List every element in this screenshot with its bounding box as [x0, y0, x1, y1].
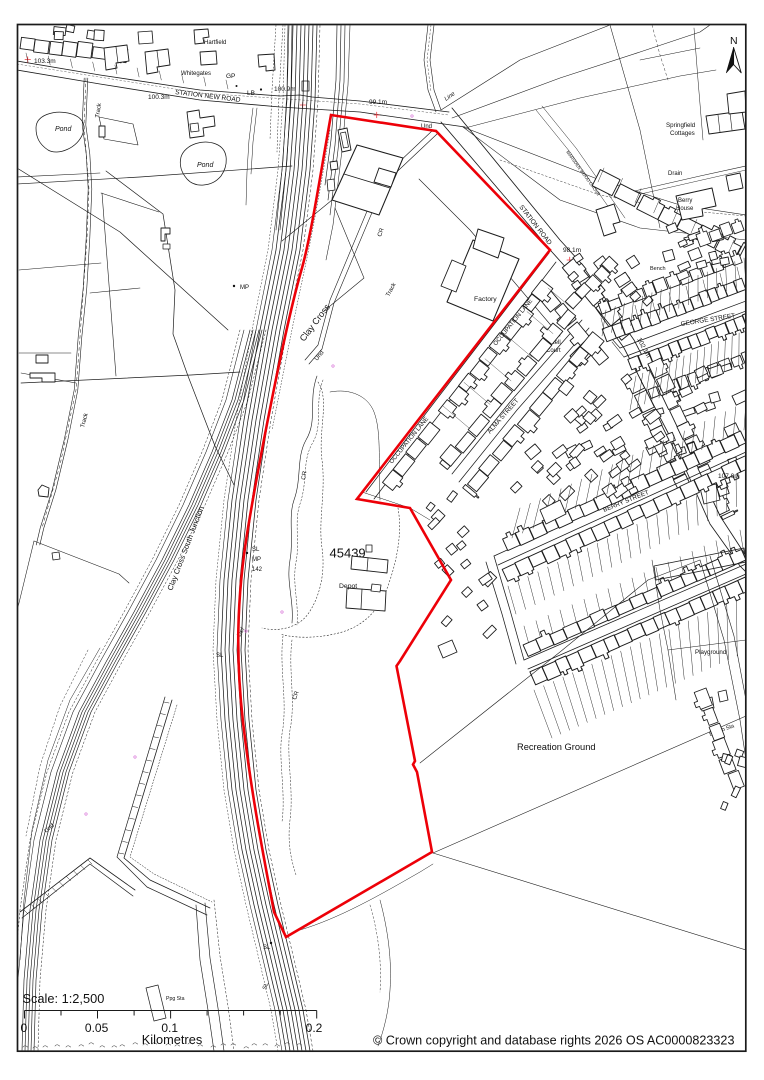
svg-text:House: House [676, 206, 694, 212]
svg-text:N: N [730, 35, 738, 47]
svg-text:98.1m: 98.1m [563, 247, 581, 254]
svg-text:Scale: 1:2,500: Scale: 1:2,500 [23, 991, 105, 1006]
svg-text:Pond: Pond [197, 162, 214, 169]
svg-text:99.1m: 99.1m [369, 99, 387, 106]
svg-text:Springfield: Springfield [666, 122, 696, 129]
svg-text:Factory: Factory [474, 296, 497, 303]
svg-text:Drain: Drain [668, 171, 682, 177]
svg-text:100.3m: 100.3m [148, 94, 170, 101]
svg-text:Ppg Sta: Ppg Sta [166, 996, 185, 1002]
svg-text:Pond: Pond [55, 126, 72, 133]
svg-text:SL: SL [252, 547, 260, 553]
svg-text:SL: SL [216, 653, 224, 659]
svg-text:MP: MP [240, 285, 249, 291]
svg-text:GP: GP [226, 73, 235, 80]
svg-text:© Crown copyright and database: © Crown copyright and database rights 20… [373, 1034, 734, 1048]
svg-text:Whitegates: Whitegates [181, 71, 211, 77]
svg-text:0: 0 [21, 1021, 28, 1035]
svg-text:MP: MP [252, 557, 261, 563]
svg-text:Hartfield: Hartfield [204, 40, 226, 46]
svg-text:107.0m: 107.0m [718, 473, 740, 480]
svg-text:Berry: Berry [678, 198, 692, 204]
svg-text:SL: SL [263, 945, 271, 951]
svg-text:Bench: Bench [650, 266, 666, 272]
svg-text:Depot: Depot [339, 583, 357, 590]
svg-text:142: 142 [252, 567, 263, 573]
svg-text:0.05: 0.05 [85, 1021, 109, 1035]
svg-text:100.9m: 100.9m [274, 86, 296, 93]
svg-text:Recreation Ground: Recreation Ground [517, 742, 596, 752]
svg-text:Cottages: Cottages [670, 130, 695, 137]
svg-text:Kilometres: Kilometres [142, 1032, 202, 1047]
svg-text:Playground: Playground [695, 649, 727, 656]
svg-text:103.3m: 103.3m [34, 58, 56, 65]
svg-text:LB: LB [247, 90, 255, 97]
svg-text:0.2: 0.2 [306, 1021, 323, 1035]
